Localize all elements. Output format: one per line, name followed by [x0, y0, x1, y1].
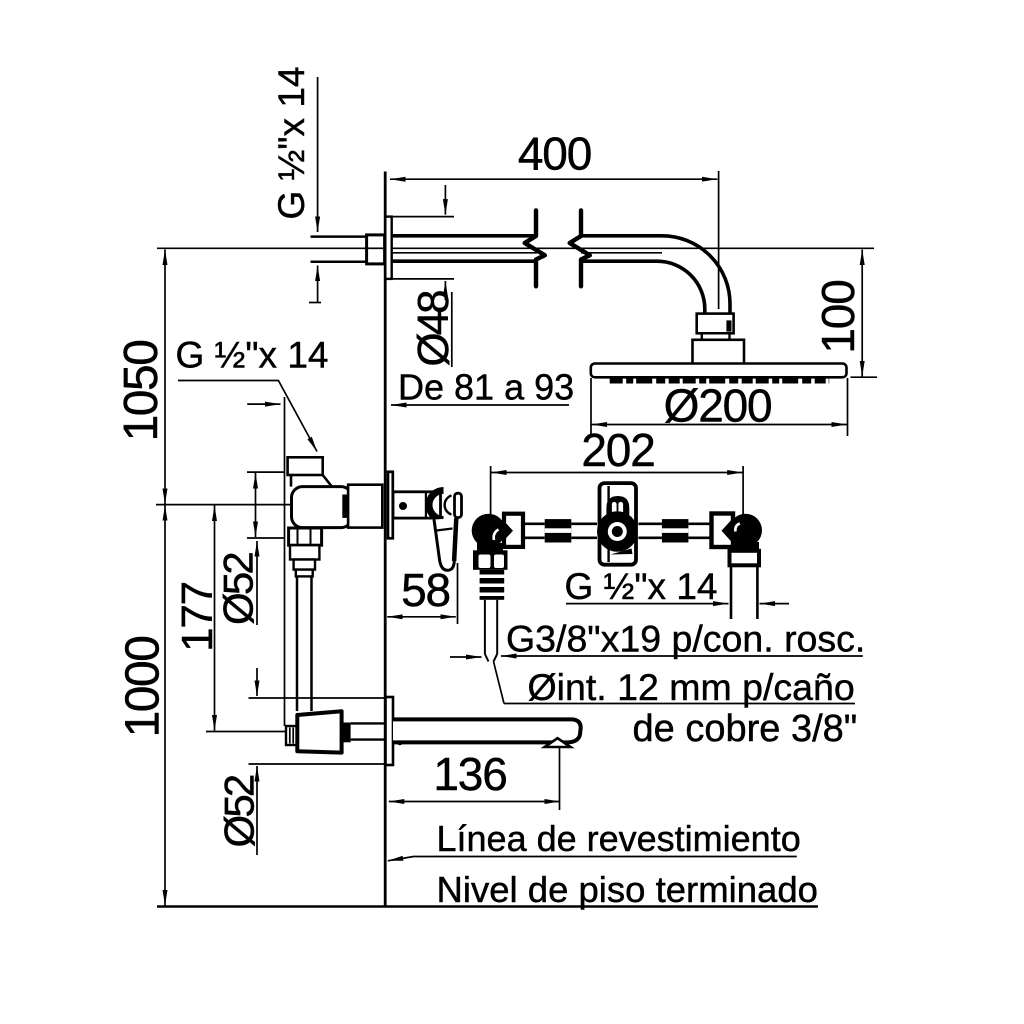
- svg-text:58: 58: [401, 564, 450, 616]
- svg-text:G3/8"x19 p/con. rosc.: G3/8"x19 p/con. rosc.: [506, 618, 865, 660]
- svg-text:136: 136: [433, 748, 506, 800]
- svg-text:1000: 1000: [117, 637, 170, 738]
- svg-text:De 81 a 93: De 81 a 93: [398, 367, 574, 408]
- svg-text:Ø52: Ø52: [216, 775, 263, 847]
- svg-text:Ø48: Ø48: [409, 291, 458, 367]
- svg-text:G ½"x 14: G ½"x 14: [565, 566, 718, 607]
- svg-text:1050: 1050: [115, 341, 168, 442]
- svg-text:G ½"x 14: G ½"x 14: [176, 335, 329, 376]
- svg-text:202: 202: [581, 424, 654, 476]
- svg-text:Nivel de piso terminado: Nivel de piso terminado: [437, 869, 818, 910]
- svg-text:Ø200: Ø200: [664, 380, 772, 432]
- svg-text:100: 100: [812, 280, 864, 353]
- svg-text:400: 400: [518, 128, 591, 180]
- svg-text:Ø52: Ø52: [215, 553, 262, 625]
- svg-text:G ½"x 14: G ½"x 14: [271, 67, 312, 220]
- svg-text:Øint. 12 mm p/caño: Øint. 12 mm p/caño: [528, 666, 855, 708]
- svg-text:Línea de revestimiento: Línea de revestimiento: [437, 818, 801, 859]
- svg-text:de cobre 3/8": de cobre 3/8": [633, 708, 858, 750]
